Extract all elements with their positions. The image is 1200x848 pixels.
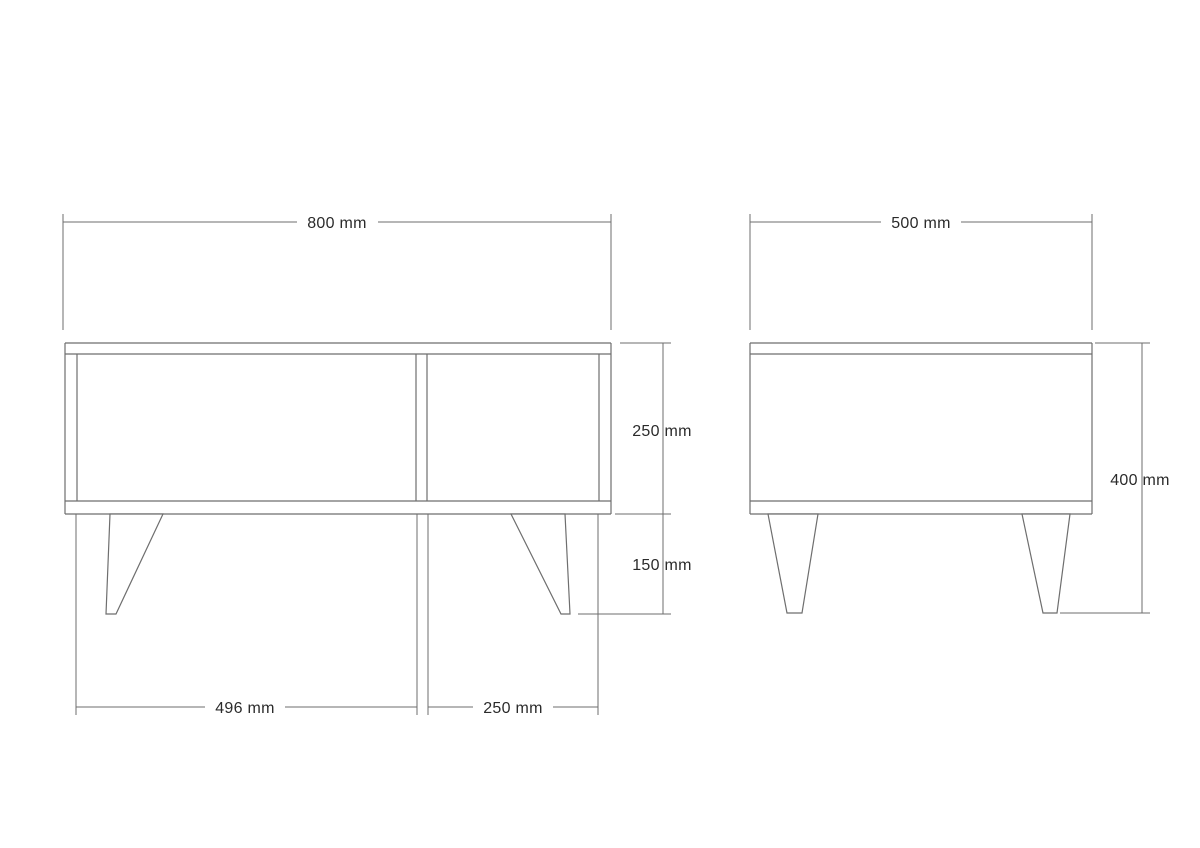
front-right-leg bbox=[511, 514, 570, 614]
side-dimension-labels: 500 mm 400 mm bbox=[891, 215, 1170, 489]
side-overall-height-label: 400 mm bbox=[1110, 472, 1170, 489]
side-view: 500 mm 400 mm bbox=[750, 214, 1170, 613]
front-dimension-labels: 800 mm 250 mm 150 mm 496 mm 250 mm bbox=[215, 215, 692, 717]
side-overall-depth-label: 500 mm bbox=[891, 215, 951, 232]
side-left-leg bbox=[768, 514, 818, 613]
dim-front-right-compartment bbox=[428, 514, 598, 715]
front-overall-width-label: 800 mm bbox=[307, 215, 367, 232]
front-cabinet bbox=[65, 343, 611, 614]
front-leg-height-label: 150 mm bbox=[632, 557, 692, 574]
front-left-compartment-label: 496 mm bbox=[215, 700, 275, 717]
front-dimensions bbox=[63, 214, 671, 715]
front-right-compartment-label: 250 mm bbox=[483, 700, 543, 717]
drawing-canvas: 800 mm 250 mm 150 mm 496 mm 250 mm bbox=[0, 0, 1200, 848]
side-cabinet bbox=[750, 343, 1092, 613]
front-view: 800 mm 250 mm 150 mm 496 mm 250 mm bbox=[63, 214, 692, 717]
side-right-leg bbox=[1022, 514, 1070, 613]
front-body-height-label: 250 mm bbox=[632, 423, 692, 440]
technical-drawing: 800 mm 250 mm 150 mm 496 mm 250 mm bbox=[0, 0, 1200, 848]
front-left-leg bbox=[106, 514, 163, 614]
